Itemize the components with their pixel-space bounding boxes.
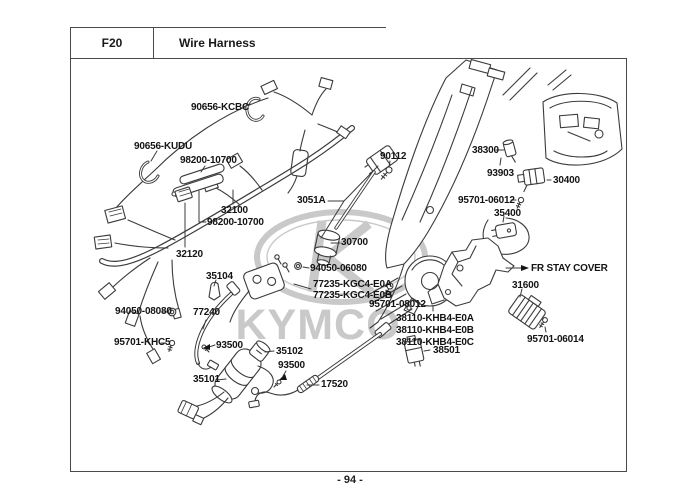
callout-98200-10700-2: 98200-10700: [207, 217, 264, 228]
parts-catalog-page: F20 Wire Harness KYMCO: [0, 0, 700, 495]
callout-98200-10700-1: 98200-10700: [180, 155, 237, 166]
callout-95701-06012: 95701-06012: [458, 195, 515, 206]
callout-38110-khb4-e0b: 38110-KHB4-E0B: [396, 325, 474, 336]
callout-38501: 38501: [433, 345, 460, 356]
callout-35104: 35104: [206, 271, 233, 282]
callout-95701-08012: 95701-08012: [369, 299, 426, 310]
callout-93903: 93903: [487, 168, 514, 179]
callout-77240: 77240: [193, 307, 220, 318]
callout-93500-2: 93500: [278, 360, 305, 371]
callout-35101: 35101: [193, 374, 220, 385]
callout-fr-stay-cover: FR STAY COVER: [531, 263, 608, 274]
callout-35400: 35400: [494, 208, 521, 219]
callout-77235-kgc4-e0a: 77235-KGC4-E0A: [313, 279, 392, 290]
regulator-31600: [508, 290, 550, 330]
callout-3051a: 3051A: [297, 195, 325, 206]
callout-95701-khc5: 95701-KHC5: [114, 337, 170, 348]
unit-30400: [517, 168, 546, 192]
callout-35102: 35102: [276, 346, 303, 357]
front-cover-drawing: [543, 93, 622, 165]
callout-93500-1: 93500: [216, 340, 243, 351]
callout-90656-kcbc: 90656-KCBC: [191, 102, 249, 113]
screw-93500-icon-2: [273, 379, 282, 388]
callout-32100: 32100: [221, 205, 248, 216]
screw-94050-06080-icon: [293, 261, 302, 270]
page-number: - 94 -: [0, 474, 700, 486]
callout-31600: 31600: [512, 280, 539, 291]
callout-94050-08080: 94050-08080: [115, 306, 172, 317]
callout-38300: 38300: [472, 145, 499, 156]
callout-38110-khb4-e0a: 38110-KHB4-E0A: [396, 313, 474, 324]
callout-30700: 30700: [341, 237, 368, 248]
callout-90656-kudu: 90656-KUDU: [134, 141, 192, 152]
callout-94050-06080: 94050-06080: [310, 263, 367, 274]
callout-95701-06014: 95701-06014: [527, 334, 584, 345]
callout-90112: 90112: [380, 151, 406, 162]
sensor-38300: [503, 139, 519, 164]
callout-30400: 30400: [553, 175, 580, 186]
callout-17520: 17520: [321, 379, 348, 390]
callout-32120: 32120: [176, 249, 203, 260]
